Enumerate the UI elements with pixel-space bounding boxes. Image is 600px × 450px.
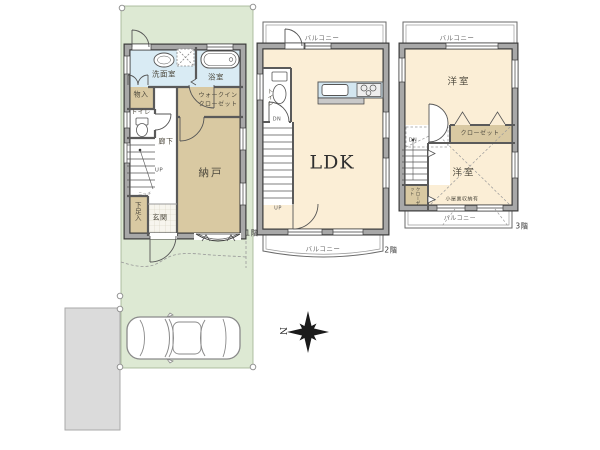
bathtub <box>201 51 239 68</box>
f2-ldk-label: LDK <box>309 154 354 173</box>
f2-floor-tag: 2階 <box>384 246 397 254</box>
f1-toilet-fixture <box>136 118 148 137</box>
parked-car <box>127 313 240 363</box>
compass-rose <box>287 311 329 353</box>
washer-space <box>177 49 194 66</box>
f1-shoe-box-label: 下足入 <box>134 201 141 221</box>
f1-bathroom-label: 浴室 <box>208 73 224 81</box>
floor-plan-canvas: 洗面室 浴室 物入 トイレ ウォークイン クローゼット 廊下 UP 納戸 ニッチ… <box>0 0 600 450</box>
f3-closet-label: クローゼット <box>460 131 499 137</box>
f2-balcony-top-label: バルコニー <box>305 35 340 42</box>
plan-graphics <box>0 0 600 450</box>
f1-niche-label: ニッチ <box>138 192 152 196</box>
f1-bay-window <box>194 233 241 241</box>
f1-storeroom-label: 納戸 <box>199 168 224 179</box>
f1-storage-small-label: 物入 <box>134 92 149 99</box>
f2-toilet-fixture <box>272 72 287 104</box>
f2-balcony-bottom-label: バルコニー <box>306 246 341 253</box>
f1-hallway-label: 廊下 <box>159 139 174 146</box>
f1-stairs-up-label: UP <box>155 168 163 174</box>
f3-room-bottom-label: 洋室 <box>452 168 475 178</box>
f1-wic-label-line1: ウォークイン <box>198 93 237 99</box>
f3-balcony-bottom-label: バルコニー <box>444 216 476 222</box>
f1-floor-tag: 1階 <box>245 229 258 237</box>
f1-entrance-label: 玄関 <box>153 215 168 222</box>
f3-floor-tag: 3階 <box>515 222 528 230</box>
f3-room-fills <box>402 46 515 208</box>
compass-north-label: N <box>277 327 287 335</box>
neighbor-building <box>65 308 120 430</box>
f3-room-top-label: 洋室 <box>447 77 470 87</box>
f1-toilet-label: トイレ <box>131 110 151 116</box>
f2-stairs-up-label: UP <box>274 207 282 212</box>
f3-closet-small-label: クローゼット <box>406 187 420 206</box>
f3-stairs-down-label: DN <box>409 139 418 144</box>
f2-stairs-down-label: DN <box>273 118 282 123</box>
f3-attic-note-label: 小屋裏収納有 <box>445 198 478 203</box>
f2-toilet-label: トイレ <box>266 88 272 106</box>
floor1-plan <box>124 30 246 262</box>
f1-washroom-label: 洗面室 <box>152 70 176 78</box>
floor2-plan <box>257 22 389 257</box>
f1-wic-label-line2: クローゼット <box>198 102 237 108</box>
f3-balcony-top-label: バルコニー <box>440 35 475 42</box>
